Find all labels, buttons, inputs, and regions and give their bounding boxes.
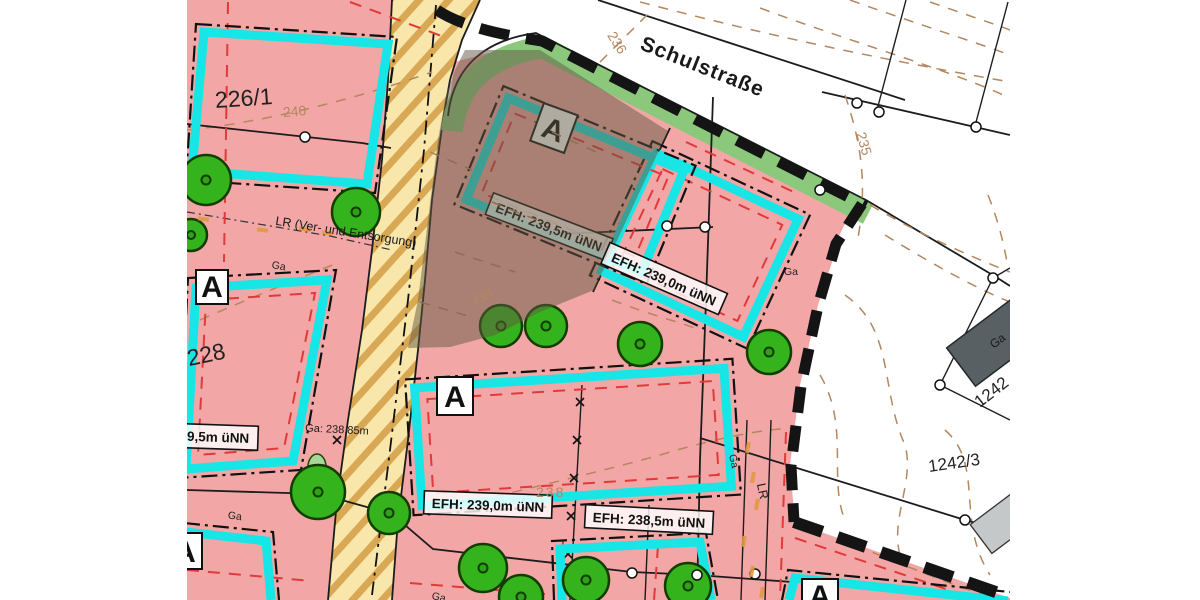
zone-a-marker: A [168,533,202,569]
zone-a-marker: A [196,270,228,304]
map-canvas: A EFH: 239,5m üNN Ga [0,0,1200,600]
contour-label-235: 235 [853,130,875,157]
ga-label: Ga [227,509,243,523]
contour-line [760,8,1010,98]
contour-line [850,0,1010,55]
contour-label-240: 240 [282,102,307,120]
svg-text:A: A [444,381,466,414]
parcel-line [975,2,1008,126]
svg-text:EFH: 239,5m üNN: EFH: 239,5m üNN [136,427,249,446]
efh-label-239-0: EFH: 239,0m üNN [424,491,553,518]
contour-line [988,195,1008,268]
parcel-label-226-1: 226/1 [214,83,273,113]
zone-a-marker: A [802,579,838,600]
ga-label: Ga [431,590,447,600]
contour-line [930,2,1010,30]
svg-text:A: A [174,536,196,569]
svg-text:A: A [201,271,223,304]
street-name-label: Schulstraße [637,32,768,101]
ga-label: Ga [784,266,798,278]
zoning-plan-map[interactable]: A EFH: 239,5m üNN Ga [0,0,1200,600]
svg-text:A: A [809,580,831,600]
ga-label: Ga [271,259,287,273]
parcel-line [877,0,906,110]
zone-a-marker: A [437,377,473,415]
efh-label-239-5-partial: EFH: 239,5m üNN [128,422,259,451]
contour-label-236: 236 [604,28,630,56]
contour-label-238: 238 [536,484,565,500]
